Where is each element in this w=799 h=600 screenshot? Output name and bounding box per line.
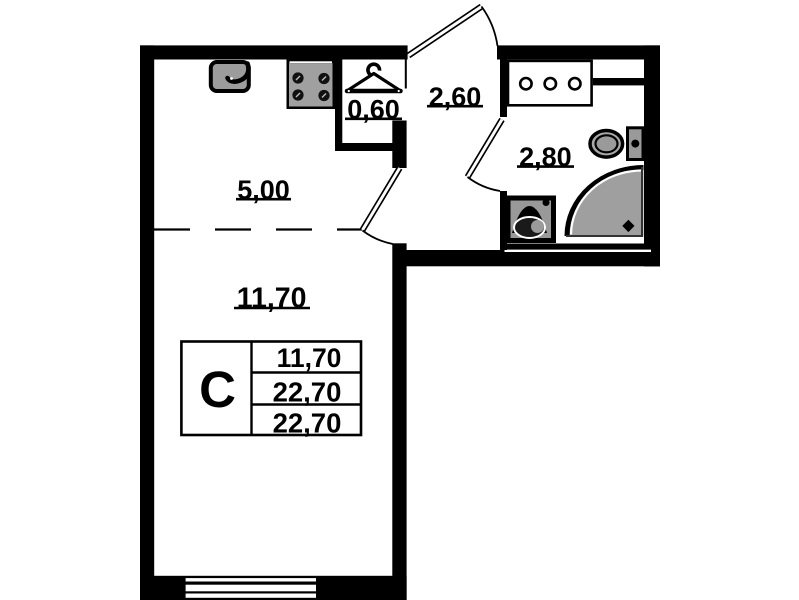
svg-text:11,70: 11,70	[277, 343, 342, 373]
svg-text:22,70: 22,70	[273, 408, 342, 439]
svg-text:2,60: 2,60	[429, 82, 482, 112]
svg-text:22,70: 22,70	[273, 376, 342, 407]
svg-text:11,70: 11,70	[237, 283, 307, 315]
svg-text:С: С	[199, 361, 236, 418]
